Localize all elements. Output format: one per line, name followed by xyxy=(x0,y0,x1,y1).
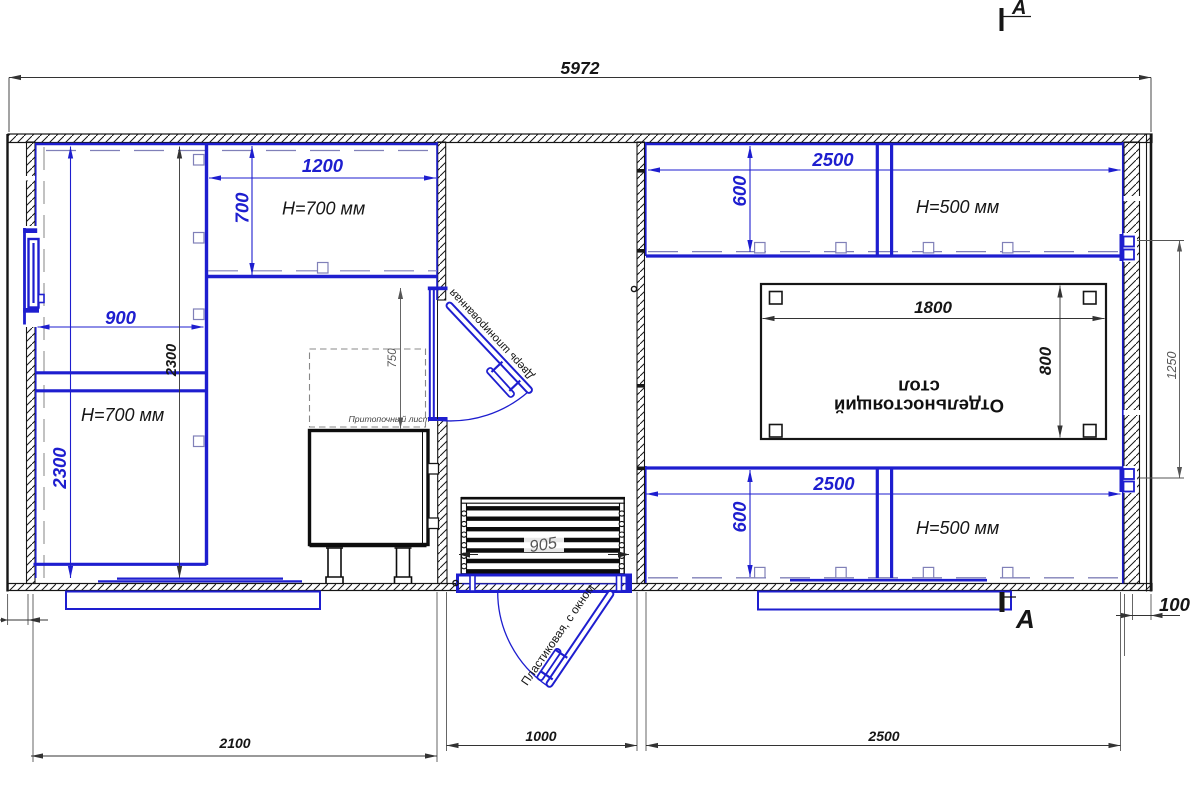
svg-text:A: A xyxy=(1011,0,1026,19)
svg-text:600: 600 xyxy=(729,501,750,533)
svg-text:2300: 2300 xyxy=(164,344,180,377)
svg-text:H=500 мм: H=500 мм xyxy=(916,518,999,538)
svg-text:750: 750 xyxy=(387,348,399,368)
svg-text:1000: 1000 xyxy=(525,728,556,744)
svg-text:900: 900 xyxy=(105,307,137,328)
svg-text:1250: 1250 xyxy=(1165,352,1179,380)
svg-text:A: A xyxy=(1015,604,1035,634)
svg-text:H=700 мм: H=700 мм xyxy=(282,199,365,219)
svg-text:2500: 2500 xyxy=(867,728,899,744)
svg-text:2100: 2100 xyxy=(218,735,250,751)
svg-text:Притопочный лист: Притопочный лист xyxy=(349,414,430,424)
svg-text:600: 600 xyxy=(729,175,750,207)
svg-text:2500: 2500 xyxy=(811,149,854,170)
svg-text:H=500 мм: H=500 мм xyxy=(916,197,999,217)
svg-text:700: 700 xyxy=(232,192,253,224)
svg-text:стол: стол xyxy=(898,377,940,398)
svg-text:Дверь шпонированная: Дверь шпонированная xyxy=(447,287,537,382)
svg-text:2500: 2500 xyxy=(812,473,855,494)
svg-text:800: 800 xyxy=(1036,346,1055,375)
svg-text:1800: 1800 xyxy=(914,298,952,317)
svg-text:5972: 5972 xyxy=(561,58,600,78)
svg-text:2300: 2300 xyxy=(49,447,70,490)
svg-text:100: 100 xyxy=(1159,594,1191,615)
svg-text:Отдельностоящий: Отдельностоящий xyxy=(834,396,1004,417)
svg-text:905: 905 xyxy=(528,534,559,556)
svg-text:H=700 мм: H=700 мм xyxy=(81,405,164,425)
svg-text:1200: 1200 xyxy=(302,155,344,176)
